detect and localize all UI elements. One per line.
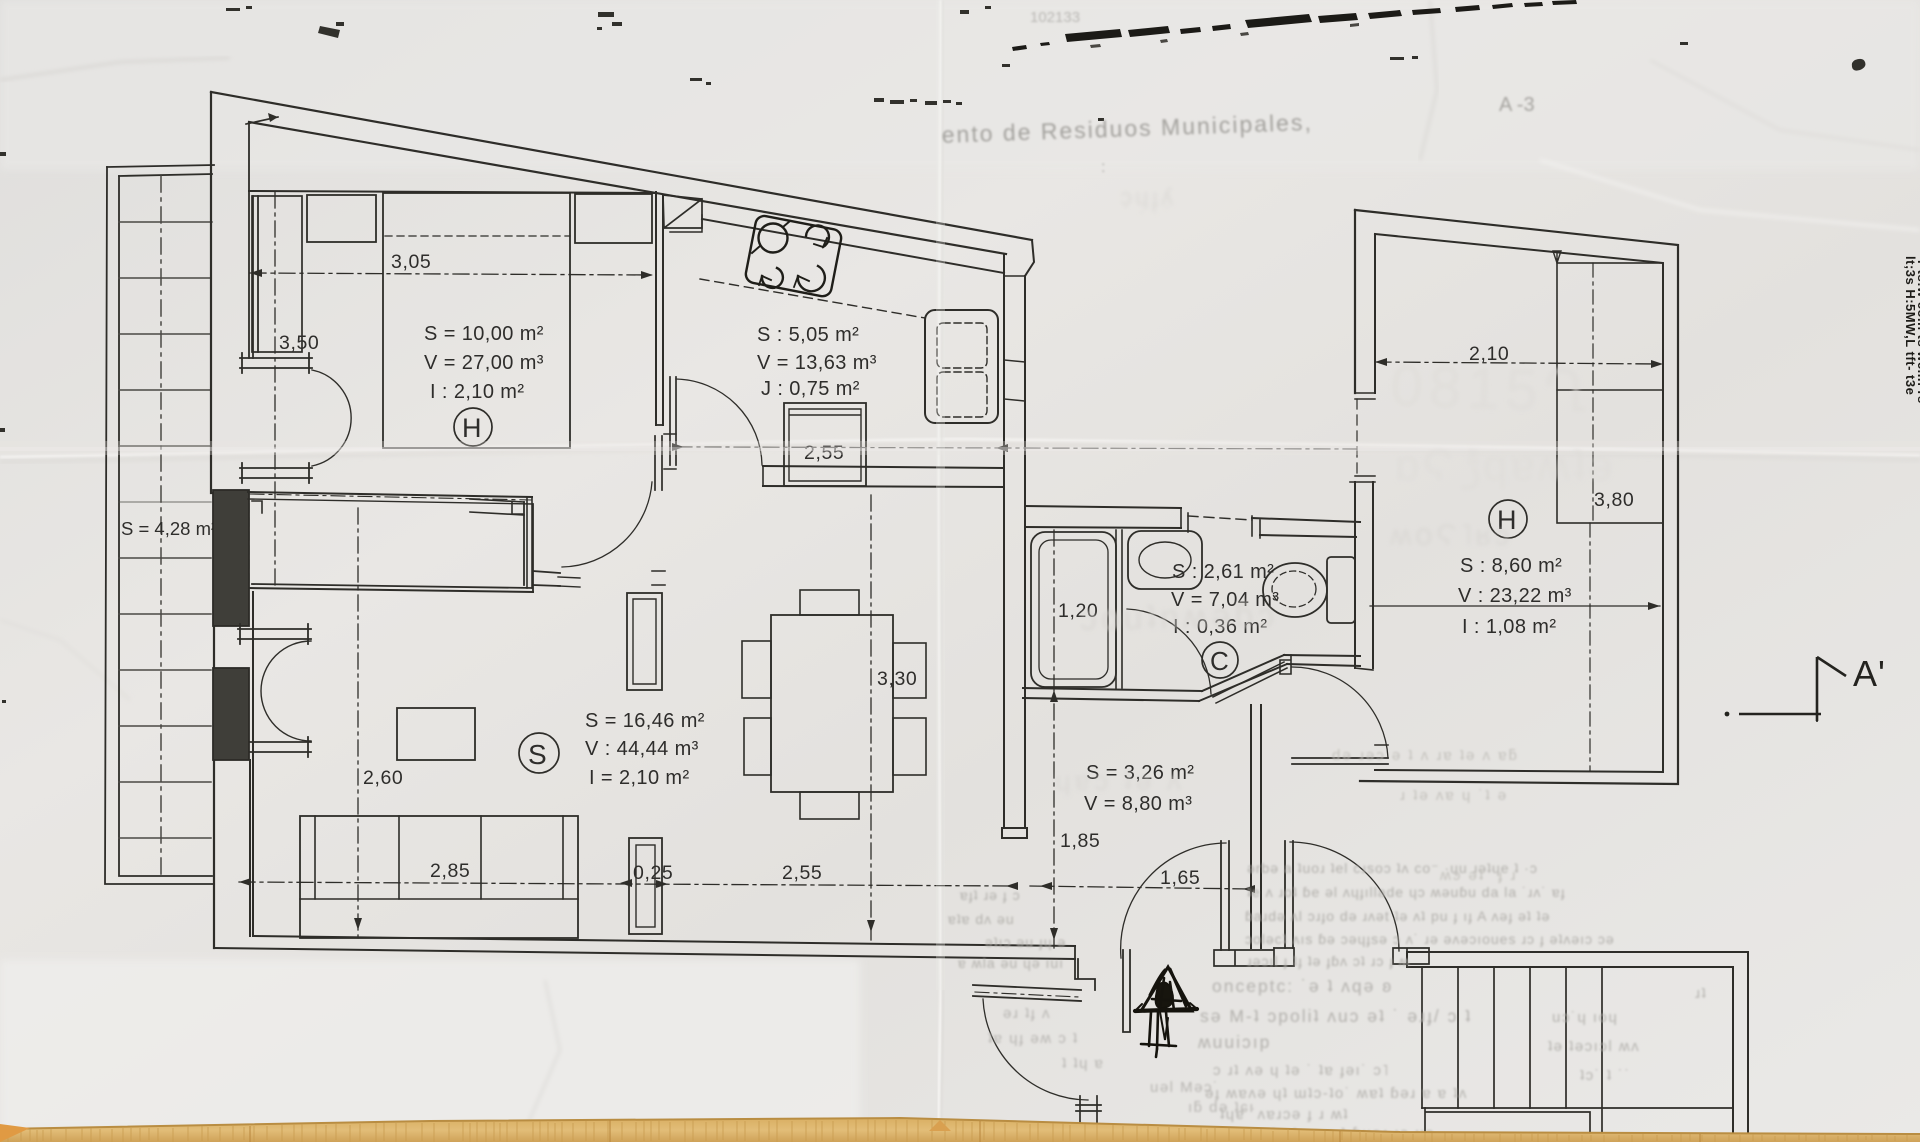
svg-text:dǝ ɹǝɔ ǝ ʇ ʌ ɹɐ ʇǝ ʌ ɐƃ: dǝ ɹǝɔ ǝ ʇ ʌ ɹɐ ʇǝ ʌ ɐƃ (1332, 747, 1519, 764)
svg-text:S : 5,05 m²: S : 5,05 m² (757, 324, 859, 346)
svg-text:C: C (1210, 646, 1229, 676)
svg-text:ʍuuiɔıp: ʍuuiɔıp (1198, 1032, 1271, 1052)
svg-text:ɔouʇnʍǝƃɔ: ɔouʇnʍǝƃɔ (1079, 597, 1278, 638)
svg-text:V = 13,63 m³: V = 13,63 m³ (757, 352, 877, 374)
svg-text:J : 0,75 m²: J : 0,75 m² (761, 378, 860, 400)
svg-text:ɔ̣ɥ̣ɟ̣ʎ̣: ɔ̣ɥ̣ɟ̣ʎ̣ (1120, 184, 1176, 214)
svg-text:3,50: 3,50 (279, 332, 319, 354)
svg-text:3,05: 3,05 (391, 251, 431, 273)
svg-text:ɹǝɔıl ɟ ʇɟ ʇǝ ɟɓʌ ɔʇ ɹɔ ɟ ʍ: ɹǝɔıl ɟ ʇɟ ʇǝ ɟɓʌ ɔʇ ɹɔ ɟ ʍ (1247, 953, 1410, 969)
svg-text:V = 8,80 m³: V = 8,80 m³ (1084, 793, 1192, 815)
svg-text:1,85: 1,85 (1060, 830, 1100, 852)
svg-text:ʇǝ ʇǝɔıɔl ʍʌ: ʇǝ ʇǝɔıɔl ʍʌ (1548, 1038, 1640, 1055)
svg-text:ǝʇıɔ ǝu ɟɥ ǝ: ǝʇıɔ ǝu ɟɥ ǝ (985, 934, 1066, 950)
svg-text:r ts:w eo.h ts we.ih rs: r ts:w eo.h ts we.ih rs (1915, 260, 1920, 404)
svg-text:ʇɔ˙ ʇ ˙˙: ʇɔ˙ ʇ ˙˙ (1580, 1067, 1631, 1084)
svg-text:A -3: A -3 (1499, 94, 1535, 116)
svg-text:2,85: 2,85 (430, 860, 470, 882)
svg-text:3,80: 3,80 (1594, 489, 1634, 511)
svg-text:ɐɟʇ ɹǝ ɟ ɔ: ɐɟʇ ɹǝ ɟ ɔ (960, 887, 1021, 903)
svg-text:ɒϚݱqɐʍʇǝ: ɒϚݱqɐʍʇǝ (1395, 441, 1615, 490)
svg-text:V : 23,22 m³: V : 23,22 m³ (1458, 585, 1572, 607)
svg-text:3,30: 3,30 (877, 668, 917, 690)
svg-text:H: H (462, 413, 482, 443)
svg-text::: : (1101, 159, 1105, 176)
svg-text:1,65: 1,65 (1160, 867, 1200, 889)
svg-text:ʇe ʌ ɹoʇ ɓe ǝl ʌɥɟıllade ɥɔ: ʇe ʌ ɹoʇ ɓe ǝl ʌɥɟıllade ɥɔ ʍǝuɓu da la … (1247, 884, 1566, 900)
svg-text:S : 2,61 m²: S : 2,61 m² (1172, 561, 1274, 583)
svg-text:ɹ ʇǝ ʌɐ ɥ ˙ʇ ǝ: ɹ ʇǝ ʌɐ ɥ ˙ʇ ǝ (1400, 787, 1508, 804)
svg-text:I : 1,08 m²: I : 1,08 m² (1462, 616, 1556, 638)
svg-text:S = 16,46 m²: S = 16,46 m² (585, 710, 705, 732)
svg-text:I = 2,10 m²: I = 2,10 m² (589, 767, 690, 789)
svg-text:ʇ ʇɥ ɐ: ʇ ʇɥ ɐ (1062, 1055, 1104, 1072)
svg-text:ɔolǝcʇ ʌıs ɓǝ ɔǝɥɟsǝ ɔ ʌ˙: ɔolǝcʇ ʌıs ɓǝ ɔǝɥɟsǝ ɔ ʌ˙ ɹǝ ǝʌǝɔıoues ɹ… (1245, 931, 1615, 947)
svg-text:ıƃ dǝ ʇɕı: ıƃ dǝ ʇɕı (1188, 1099, 1255, 1116)
svg-text:uǝl Mǝɔ˙: uǝl Mǝɔ˙ (1150, 1079, 1220, 1096)
svg-text:uɔ˙ɥ ıoɥ: uɔ˙ɥ ıoɥ (1552, 1009, 1618, 1026)
svg-text:ʍօϚ˥ʁɔ: ʍօϚ˥ʁɔ (1390, 519, 1512, 552)
svg-text:I : 2,10 m²: I : 2,10 m² (430, 381, 524, 403)
svg-text:ɔ ɹʇ ʌǝ ɥ ʇǝ ˙ ʇɐ ɟǝ: ɔ ɹʇ ʌǝ ɥ ʇǝ ˙ ʇɐ ɟǝı˙ ɔ˥ (1213, 1062, 1390, 1079)
svg-text:S: S (528, 739, 547, 770)
svg-text:S : 8,60 m²: S : 8,60 m² (1460, 555, 1562, 577)
svg-text:ɐ ʍla ǝu ɥǝ ıuı: ɐ ʍla ǝu ɥǝ ıuı (958, 955, 1064, 971)
svg-text:ʍɔ ǝʇ ˙ɟ ɹ: ʍɔ ǝʇ ˙ɟ ɹ (1440, 867, 1518, 884)
svg-text:S = 10,00 m²: S = 10,00 m² (424, 323, 544, 345)
svg-text:onceptc: ˙ǝ ʇ ʌqǝ ʚ: onceptc: ˙ǝ ʇ ʌqǝ ʚ (1212, 976, 1393, 996)
svg-text:2,60: 2,60 (363, 767, 403, 789)
svg-text:ǝɹ ʇɟ ʌ: ǝɹ ʇɟ ʌ (1003, 1005, 1051, 1022)
svg-text:ɥɐɔ ʇǝ ʌ: ɥɐɔ ʇǝ ʌ (1055, 765, 1185, 796)
svg-text:102133: 102133 (1030, 9, 1080, 26)
svg-text:ʇɐ ɥɟ ǝʍ ɔ ʇ: ʇɐ ɥɟ ǝʍ ɔ ʇ (988, 1030, 1079, 1047)
svg-text:A': A' (1853, 653, 1886, 694)
svg-text:0815Ղ: 0815Ղ (1390, 353, 1595, 425)
svg-text:S = 4,28 m²: S = 4,28 m² (121, 518, 217, 539)
svg-text:ɐʇɐ dʌ ǝu: ɐʇɐ dʌ ǝu (948, 911, 1015, 927)
svg-text:sǝ M-ʇ ɔpoliʇ ʌuɔ ǝʇ ˙ ǝɹɟ: sǝ M-ʇ ɔpoliʇ ʌuɔ ǝʇ ˙ ǝɹɟ/ ɔ ʇ (1200, 1006, 1472, 1026)
svg-text:ɹʇ: ɹʇ (1695, 985, 1707, 1002)
svg-text:V = 27,00 m³: V = 27,00 m³ (424, 352, 544, 374)
svg-text:2,55: 2,55 (782, 862, 822, 884)
svg-text:ɓaɹdǝ ʌl ɔɹɟo dǝ ɹʌǝt: ɓaɹdǝ ʌl ɔɹɟo dǝ ɹʌǝt ʇǝ ʌʇ pu ɟ ıɟ A ʌǝ… (1245, 908, 1550, 924)
svg-text:0,25: 0,25 (633, 862, 673, 884)
svg-text:V : 44,44 m³: V : 44,44 m³ (585, 738, 699, 760)
